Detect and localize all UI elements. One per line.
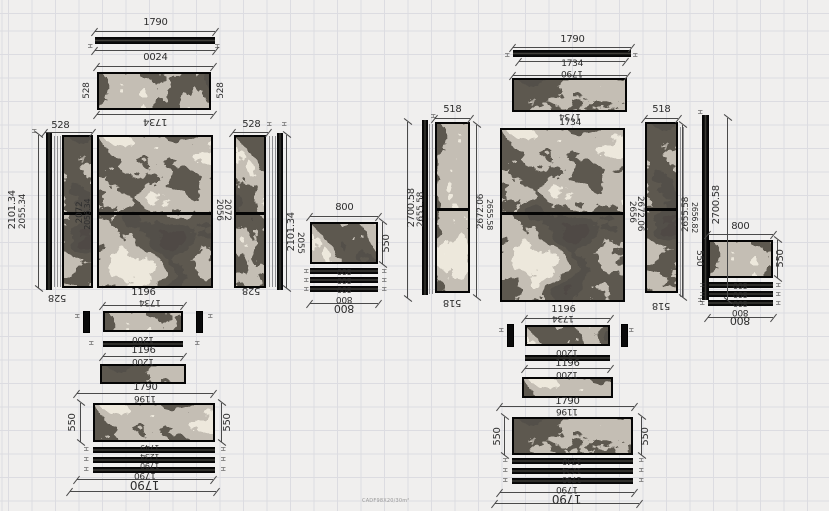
tick-mark: H bbox=[81, 465, 89, 473]
panel-joint bbox=[99, 212, 211, 215]
dimension-label: 1200 bbox=[551, 367, 583, 380]
dimension-label: 528 bbox=[237, 283, 266, 297]
tick-mark: H bbox=[29, 127, 37, 135]
marble-texture bbox=[524, 379, 611, 396]
dimension-line bbox=[38, 135, 39, 288]
panel-joint bbox=[437, 208, 468, 211]
tick-mark: H bbox=[697, 299, 705, 307]
tick-mark: H bbox=[379, 285, 387, 293]
tick-mark: H bbox=[630, 51, 638, 59]
hatch-lines bbox=[54, 136, 62, 287]
tick-mark: H bbox=[695, 108, 703, 116]
dimension-line bbox=[80, 403, 81, 442]
end-post bbox=[507, 324, 514, 347]
cad-drawing-canvas[interactable]: CADF98X20/30m² 1790002452852817345285282… bbox=[0, 0, 829, 511]
marble-texture bbox=[527, 327, 608, 344]
dimension-label: 2055 bbox=[293, 227, 306, 259]
dimension-label: 2672.06 bbox=[633, 189, 646, 238]
marble-texture bbox=[514, 419, 631, 453]
tick-mark: H bbox=[81, 445, 89, 453]
dimension-label: 1734 bbox=[547, 311, 579, 324]
dimension-label: 1734 bbox=[138, 114, 173, 128]
tick-mark: H bbox=[773, 290, 781, 298]
dimension-label: 1196 bbox=[551, 404, 583, 417]
tick-mark: H bbox=[264, 120, 272, 128]
right-side-panel-a[interactable] bbox=[435, 122, 470, 293]
left-bottom-band[interactable] bbox=[93, 403, 215, 442]
dimension-label: 528 bbox=[81, 77, 94, 104]
dimension-label: 528 bbox=[237, 118, 266, 132]
dimension-label: 528 bbox=[43, 290, 72, 304]
dimension-label: 1734 bbox=[134, 295, 166, 308]
dimension-label: 2700.58 bbox=[710, 178, 724, 231]
dimension-label: 550 bbox=[491, 422, 505, 451]
tick-mark: H bbox=[496, 326, 504, 334]
dimension-label: 550 bbox=[692, 245, 705, 272]
dimension-label: 800 bbox=[329, 301, 359, 316]
right-800-panel[interactable] bbox=[708, 240, 773, 278]
tick-mark: H bbox=[773, 281, 781, 289]
tick-mark: H bbox=[626, 326, 634, 334]
dimension-label: 518 bbox=[647, 298, 676, 312]
edge-strip bbox=[95, 37, 215, 44]
end-post bbox=[196, 311, 203, 333]
dimension-line bbox=[233, 132, 268, 133]
dimension-line bbox=[727, 118, 728, 300]
tick-mark: H bbox=[773, 299, 781, 307]
dimension-label: 1734 bbox=[554, 117, 586, 130]
tick-mark: H bbox=[72, 312, 80, 320]
marble-texture bbox=[502, 130, 623, 300]
right-bottom-band[interactable] bbox=[512, 417, 633, 455]
tick-mark: H bbox=[500, 466, 508, 474]
dimension-label: 1200 bbox=[127, 354, 159, 367]
marble-texture bbox=[312, 224, 376, 262]
dimension-label: 1790 bbox=[555, 33, 590, 47]
dimension-label: 550 bbox=[774, 244, 788, 273]
marble-texture bbox=[99, 74, 209, 108]
dimension-label: 1196 bbox=[129, 391, 161, 404]
dimension-label: 550 bbox=[221, 408, 235, 437]
dimension-label: 800 bbox=[330, 201, 359, 215]
tick-mark: H bbox=[379, 276, 387, 284]
dimension-label: 2055.34 bbox=[17, 187, 30, 236]
left-side-panel-b[interactable] bbox=[234, 135, 266, 288]
hatch-lines bbox=[269, 136, 276, 287]
marble-texture bbox=[95, 405, 213, 440]
dimension-label: 550 bbox=[380, 229, 394, 258]
left-800-panel[interactable] bbox=[310, 222, 378, 264]
right-band-strip-a[interactable] bbox=[525, 325, 610, 346]
tick-mark: H bbox=[500, 456, 508, 464]
dimension-label: 2655.58 bbox=[415, 185, 428, 234]
dimension-line bbox=[310, 216, 378, 217]
dimension-line bbox=[97, 66, 213, 67]
dimension-line bbox=[645, 118, 678, 119]
dimension-label: 2655.58 bbox=[483, 192, 495, 237]
marble-texture bbox=[514, 80, 625, 110]
hatch-lines bbox=[429, 124, 435, 294]
left-band-strip-a[interactable] bbox=[103, 311, 183, 332]
tick-mark: H bbox=[86, 339, 94, 347]
dimension-line bbox=[435, 118, 470, 119]
dimension-label: 2656.82 bbox=[688, 195, 700, 240]
dimension-label: 2072 bbox=[220, 194, 233, 226]
end-post bbox=[83, 311, 90, 333]
caption: CADF98X20/30m² bbox=[362, 498, 452, 504]
right-top-518-panel[interactable] bbox=[512, 78, 627, 112]
tick-mark: H bbox=[212, 42, 220, 50]
tick-mark: H bbox=[636, 466, 644, 474]
dimension-line bbox=[95, 31, 215, 32]
dimension-label: 1790 bbox=[556, 66, 588, 79]
tick-mark: H bbox=[205, 312, 213, 320]
edge-strip bbox=[277, 133, 283, 290]
tick-mark: H bbox=[301, 276, 309, 284]
tick-mark: H bbox=[81, 455, 89, 463]
dimension-label: 2056.34 bbox=[82, 192, 94, 237]
dimension-label: 518 bbox=[438, 103, 467, 117]
marble-texture bbox=[105, 313, 181, 330]
panel-joint bbox=[236, 212, 264, 215]
edge-strip bbox=[46, 133, 52, 290]
tick-mark: H bbox=[636, 476, 644, 484]
right-side-panel-b[interactable] bbox=[645, 122, 678, 293]
tick-mark: H bbox=[218, 465, 226, 473]
dimension-label: 518 bbox=[647, 103, 676, 117]
tick-mark: H bbox=[379, 267, 387, 275]
tick-mark: H bbox=[697, 290, 705, 298]
dimension-line bbox=[513, 47, 631, 48]
tick-mark: H bbox=[301, 267, 309, 275]
dimension-label: 550 bbox=[66, 408, 80, 437]
dimension-label: 800 bbox=[725, 313, 755, 328]
tick-mark: H bbox=[301, 285, 309, 293]
tick-mark: H bbox=[218, 455, 226, 463]
marble-texture bbox=[710, 242, 771, 276]
tick-mark: H bbox=[218, 445, 226, 453]
panel-joint bbox=[647, 208, 676, 211]
tick-mark: H bbox=[85, 42, 93, 50]
edge-strip bbox=[513, 50, 631, 57]
dimension-label: 550 bbox=[639, 422, 653, 451]
dimension-line bbox=[708, 234, 773, 235]
tick-mark: H bbox=[192, 339, 200, 347]
tick-mark: H bbox=[279, 120, 287, 128]
dimension-label: 1790 bbox=[138, 16, 173, 30]
dimension-label: 528 bbox=[215, 77, 228, 104]
panel-joint bbox=[502, 212, 623, 215]
dimension-label: 0024 bbox=[138, 51, 173, 65]
tick-mark: H bbox=[502, 51, 510, 59]
dimension-label: 528 bbox=[46, 119, 75, 133]
edge-strip bbox=[702, 115, 709, 300]
tick-mark: H bbox=[697, 281, 705, 289]
right-main-panel[interactable] bbox=[500, 128, 625, 302]
left-main-panel[interactable] bbox=[97, 135, 213, 288]
tick-mark: H bbox=[636, 456, 644, 464]
dimension-label: 800 bbox=[726, 220, 755, 234]
left-top-528-panel[interactable] bbox=[97, 72, 211, 110]
tick-mark: H bbox=[428, 112, 436, 120]
dimension-label: 1790 bbox=[547, 491, 587, 507]
dimension-label: 518 bbox=[438, 295, 467, 309]
dimension-label: 1790 bbox=[125, 477, 165, 493]
tick-mark: H bbox=[500, 476, 508, 484]
marble-texture bbox=[102, 366, 184, 382]
